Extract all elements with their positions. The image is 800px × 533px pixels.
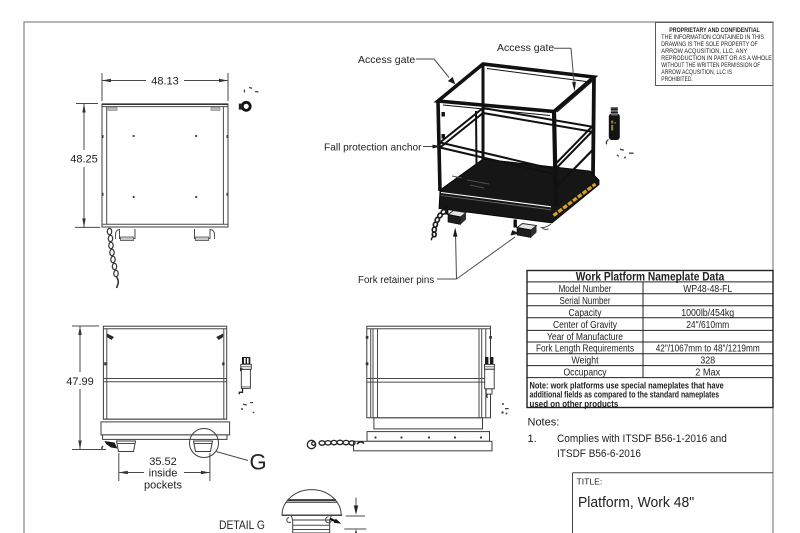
svg-text:ARROW ACQUSITION, LLC IS: ARROW ACQUSITION, LLC IS [661, 69, 732, 76]
svg-text:PROPRIETARY AND CONFIDENTIAL: PROPRIETARY AND CONFIDENTIAL [669, 27, 759, 34]
svg-text:Access gate: Access gate [358, 54, 415, 66]
svg-text:ARROW ACQUSITION, LLC. ANY: ARROW ACQUSITION, LLC. ANY [661, 48, 748, 55]
svg-text:2 Max: 2 Max [695, 367, 720, 378]
svg-text:Platform, Work 48": Platform, Work 48" [578, 494, 694, 511]
svg-text:Work Platform Nameplate Data: Work Platform Nameplate Data [576, 269, 725, 283]
svg-text:G: G [250, 450, 267, 475]
svg-text:48.13: 48.13 [151, 76, 179, 88]
svg-text:328: 328 [700, 355, 715, 366]
svg-text:Complies with ITSDF B56-1-2016: Complies with ITSDF B56-1-2016 and [557, 433, 727, 445]
svg-text:PROHIBITED.: PROHIBITED. [661, 76, 693, 83]
svg-text:ITSDF B56-6-2016: ITSDF B56-6-2016 [557, 448, 641, 460]
svg-text:Model Number: Model Number [559, 284, 612, 295]
svg-text:Fall protection anchor: Fall protection anchor [324, 142, 422, 154]
svg-text:48.25: 48.25 [70, 154, 98, 166]
svg-text:1.: 1. [528, 433, 537, 445]
svg-text:Serial Number: Serial Number [560, 296, 612, 307]
svg-text:WITHOUT THE WRITTEN PERMISSION: WITHOUT THE WRITTEN PERMISSION OF [661, 62, 760, 69]
svg-text:DETAIL G: DETAIL G [219, 520, 265, 532]
svg-text:Access gate: Access gate [497, 42, 554, 54]
svg-text:DRAWING IS THE SOLE PROPERTY O: DRAWING IS THE SOLE PROPERTY OF [661, 41, 758, 48]
svg-text:Weight: Weight [572, 355, 599, 366]
svg-text:1000lb/454kg: 1000lb/454kg [681, 308, 734, 319]
svg-text:Fork Length Requirements: Fork Length Requirements [536, 344, 634, 355]
svg-text:THE INFORMATION CONTAINED IN T: THE INFORMATION CONTAINED IN THIS [661, 34, 764, 41]
svg-text:42"/1067mm to 48"/1219mm: 42"/1067mm to 48"/1219mm [656, 344, 760, 355]
svg-text:REPRODUCTION IN PART OR AS A W: REPRODUCTION IN PART OR AS A WHOLE [661, 55, 772, 62]
svg-text:47.99: 47.99 [66, 376, 94, 388]
svg-text:Notes:: Notes: [528, 417, 560, 429]
svg-text:used on other products: used on other products [530, 398, 619, 409]
svg-text:Year of Manufacture: Year of Manufacture [547, 332, 623, 343]
svg-text:Occupancy: Occupancy [564, 367, 607, 378]
svg-text:WP48-48-FL: WP48-48-FL [683, 284, 732, 295]
svg-text:inside: inside [149, 468, 178, 480]
svg-text:TITLE:: TITLE: [577, 477, 603, 487]
svg-text:Fork retainer pins: Fork retainer pins [358, 274, 434, 286]
svg-text:24"/610mm: 24"/610mm [686, 320, 729, 331]
svg-text:pockets: pockets [144, 480, 182, 492]
svg-text:Capacity: Capacity [569, 308, 602, 319]
svg-text:35.52: 35.52 [149, 456, 177, 468]
svg-text:Center of Gravity: Center of Gravity [553, 320, 617, 331]
